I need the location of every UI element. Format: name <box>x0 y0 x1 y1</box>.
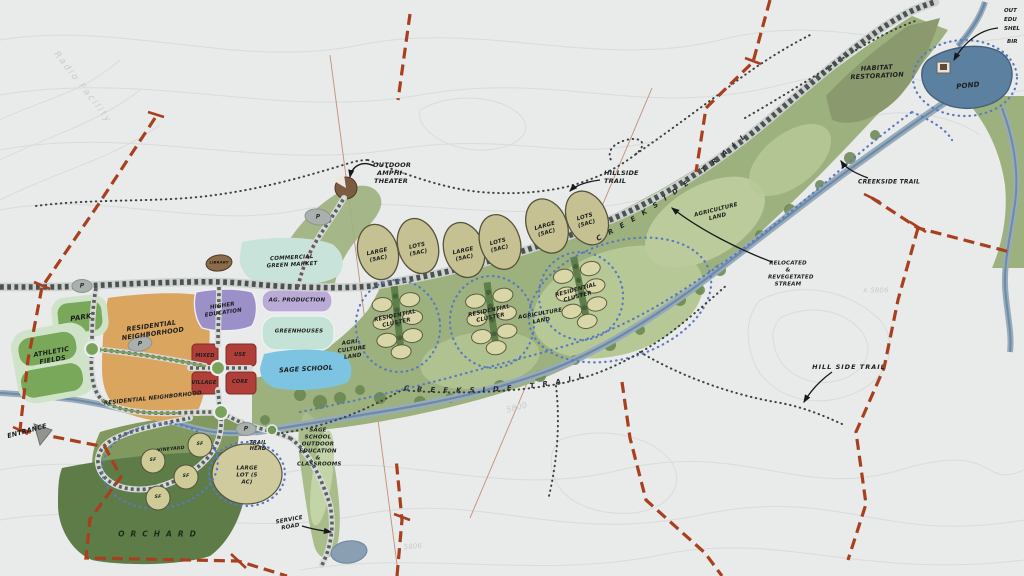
edge-cutoff-text-4: BIR <box>1007 38 1017 46</box>
sf-lot-label-3: SF <box>183 474 190 480</box>
orchard-vineyard <box>58 416 282 564</box>
sf-lot-label-1: SF <box>150 458 157 464</box>
orchard-label: ORCHARD <box>118 529 202 538</box>
parking-label-4: P <box>244 425 249 433</box>
habitat-restoration-label: HABITAT RESTORATION <box>849 62 906 81</box>
ag-production-label: AG. PRODUCTION <box>269 298 326 305</box>
edge-cutoff-text-1: OUT <box>1004 7 1017 15</box>
sf-lot-label-4: SF <box>155 495 162 501</box>
core-label: CORE <box>232 379 248 385</box>
elevation-x5806: x 5806 <box>863 287 888 296</box>
outdoor-amphitheater-label: OUTDOOR AMPHI-THEATER <box>373 161 409 185</box>
trail-head-label: TRAIL HEAD <box>246 440 270 453</box>
mixed-label: MIXED <box>195 353 214 359</box>
commercial-green-market-label: COMMERCIAL GREEN MARKET <box>266 254 319 270</box>
parking-label-2: P <box>138 340 143 348</box>
greenhouses-label: GREENHOUSES <box>275 329 324 336</box>
parking-label-1: P <box>80 282 85 290</box>
parking-label-3: P <box>316 213 321 221</box>
elevation-5806: 5806 <box>403 542 422 552</box>
relocated-stream-annotation: RELOCATED & REVEGETATED STREAM <box>768 260 808 288</box>
edge-cutoff-text-2: EDU <box>1004 16 1017 24</box>
hillside-trail-annotation: HILLSIDE TRAIL <box>604 169 644 185</box>
use-label: USE <box>234 352 246 358</box>
creekside-trail-annotation: CREEKSIDE TRAIL <box>858 178 920 186</box>
library-label: LIBRARY <box>209 261 228 266</box>
sf-lot-label-2: SF <box>197 442 204 448</box>
site-plan-map: CREEKSIDE TRAIL CREEKSIDE TRAIL Radio F <box>0 0 1024 576</box>
village-label: VILLAGE <box>192 380 217 386</box>
large-lot-5ac-label: LARGE LOT (5 AC) <box>233 466 261 487</box>
sage-school-outdoor-label: SAGE SCHOOL OUTDOOR EDUCATION & CLASSROO… <box>297 427 339 468</box>
edge-cutoff-text-3: SHEL <box>1004 25 1020 33</box>
pond-area <box>922 46 1012 108</box>
hill-side-trail-annotation: HILL SIDE TRAIL <box>812 363 886 371</box>
